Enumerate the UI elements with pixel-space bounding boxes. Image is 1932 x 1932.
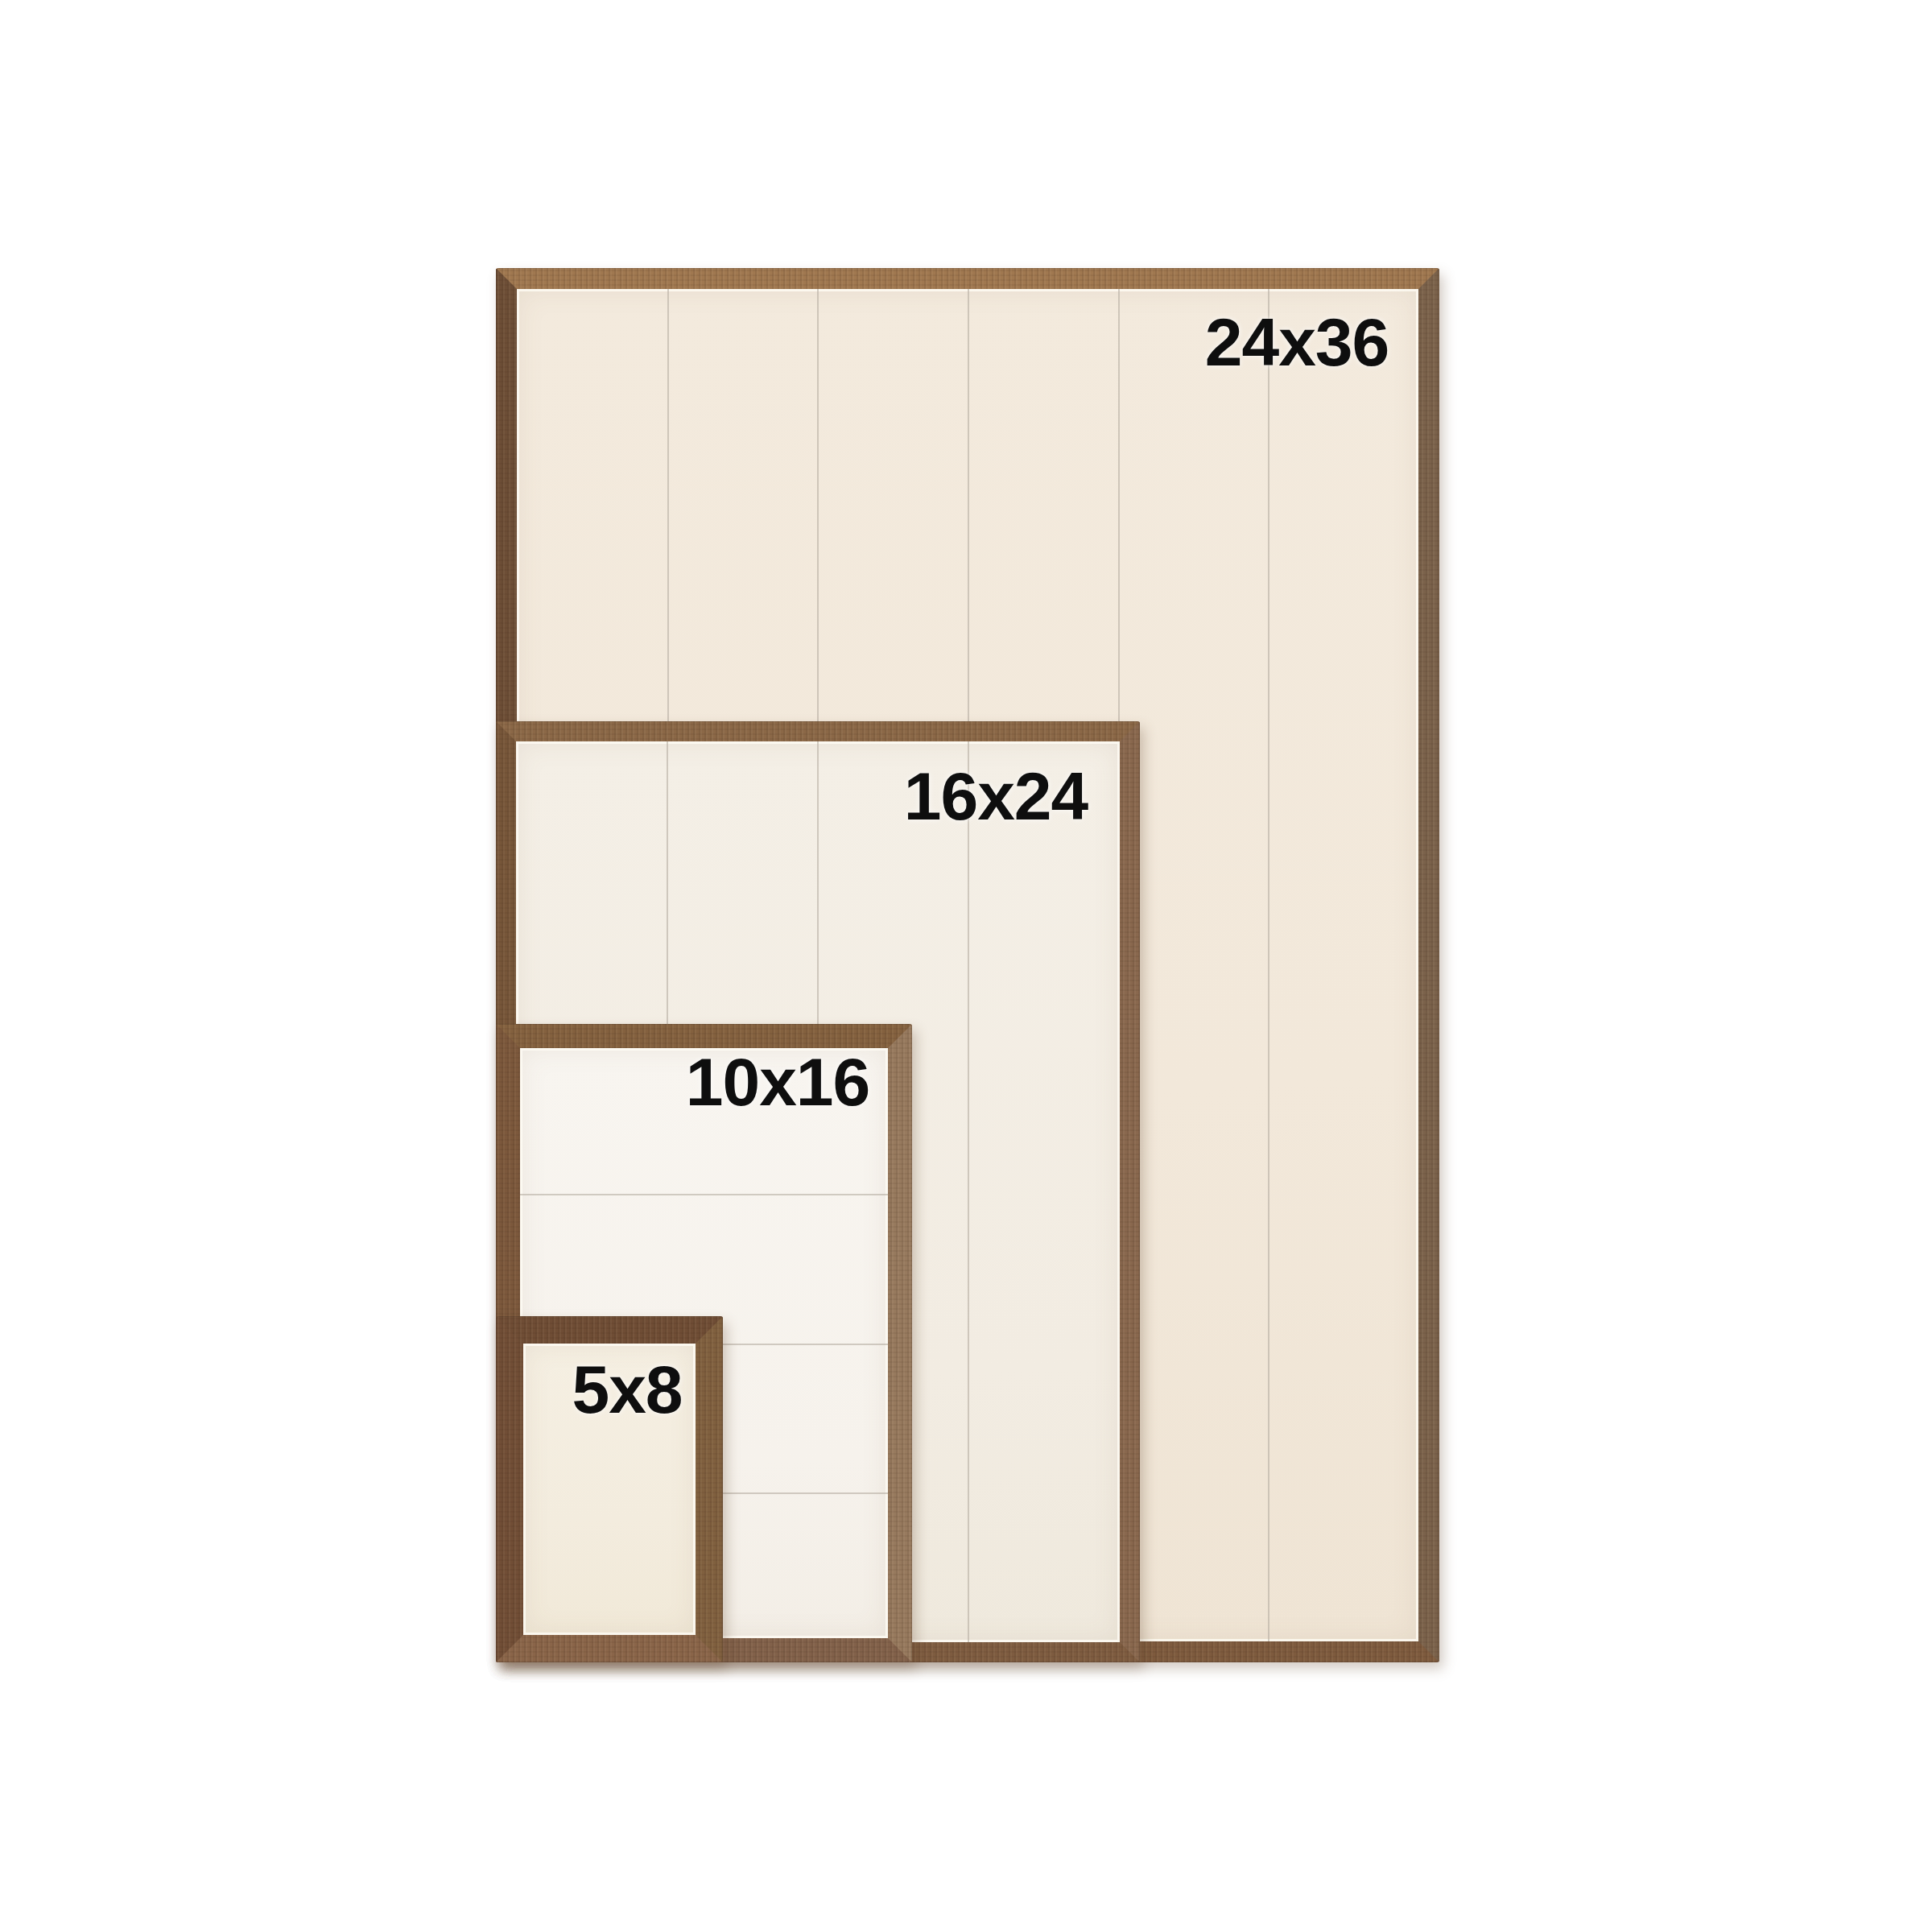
size-label-24x36: 24x36 [1205, 308, 1389, 376]
size-label-16x24: 16x24 [904, 762, 1088, 830]
size-comparison-image: 24x36 16x24 10x16 5x8 [0, 0, 1932, 1932]
size-label-10x16: 10x16 [686, 1048, 870, 1116]
plank-seam [520, 1194, 888, 1195]
plank-seam [968, 741, 969, 1642]
plank-seam [1268, 289, 1269, 1641]
size-label-5x8: 5x8 [572, 1356, 682, 1423]
